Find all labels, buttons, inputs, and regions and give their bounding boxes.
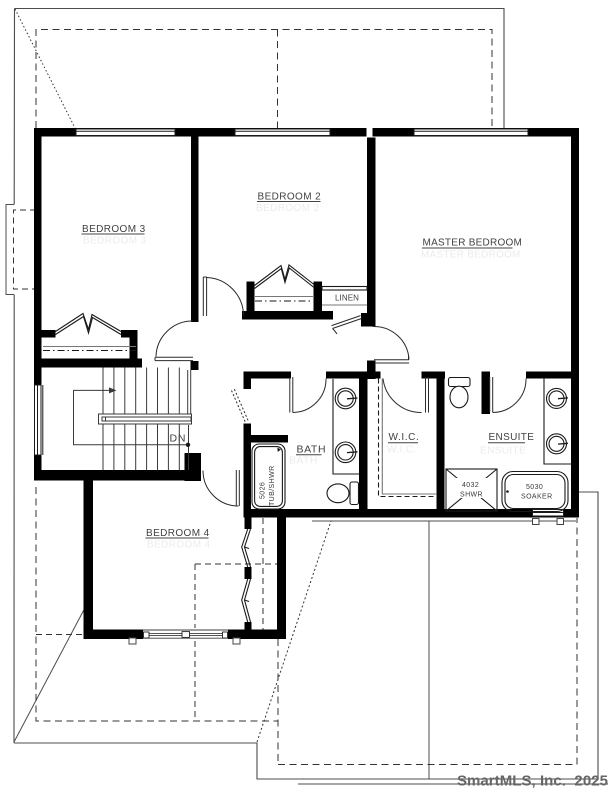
svg-text:TUB/SHWR: TUB/SHWR bbox=[269, 465, 276, 506]
svg-text:LINEN: LINEN bbox=[335, 294, 359, 303]
svg-text:5026: 5026 bbox=[260, 482, 267, 499]
svg-text:BATH: BATH bbox=[289, 455, 318, 467]
svg-text:SHWR: SHWR bbox=[460, 492, 483, 499]
svg-text:BEDROOM 2: BEDROOM 2 bbox=[256, 203, 320, 214]
svg-text:4032: 4032 bbox=[462, 482, 479, 489]
svg-text:SmartMLS, Inc. 2025: SmartMLS, Inc. 2025 bbox=[457, 773, 608, 790]
svg-text:SOAKER: SOAKER bbox=[521, 494, 553, 501]
svg-text:BEDROOM 4: BEDROOM 4 bbox=[147, 540, 211, 551]
svg-text:MASTER BEDROOM: MASTER BEDROOM bbox=[421, 250, 521, 261]
svg-text:BEDROOM 4: BEDROOM 4 bbox=[146, 528, 210, 539]
svg-text:BEDROOM 3: BEDROOM 3 bbox=[82, 224, 146, 235]
svg-text:BEDROOM 2: BEDROOM 2 bbox=[258, 192, 322, 203]
svg-text:5030: 5030 bbox=[526, 484, 543, 491]
svg-text:BEDROOM 3: BEDROOM 3 bbox=[83, 236, 147, 247]
svg-text:W.I.C.: W.I.C. bbox=[389, 432, 420, 443]
svg-text:ENSUITE: ENSUITE bbox=[489, 432, 535, 443]
svg-text:MASTER BEDROOM: MASTER BEDROOM bbox=[423, 238, 523, 249]
svg-text:ENSUITE: ENSUITE bbox=[480, 446, 526, 457]
svg-text:DN: DN bbox=[170, 433, 187, 445]
svg-text:W.I.C.: W.I.C. bbox=[387, 445, 417, 456]
